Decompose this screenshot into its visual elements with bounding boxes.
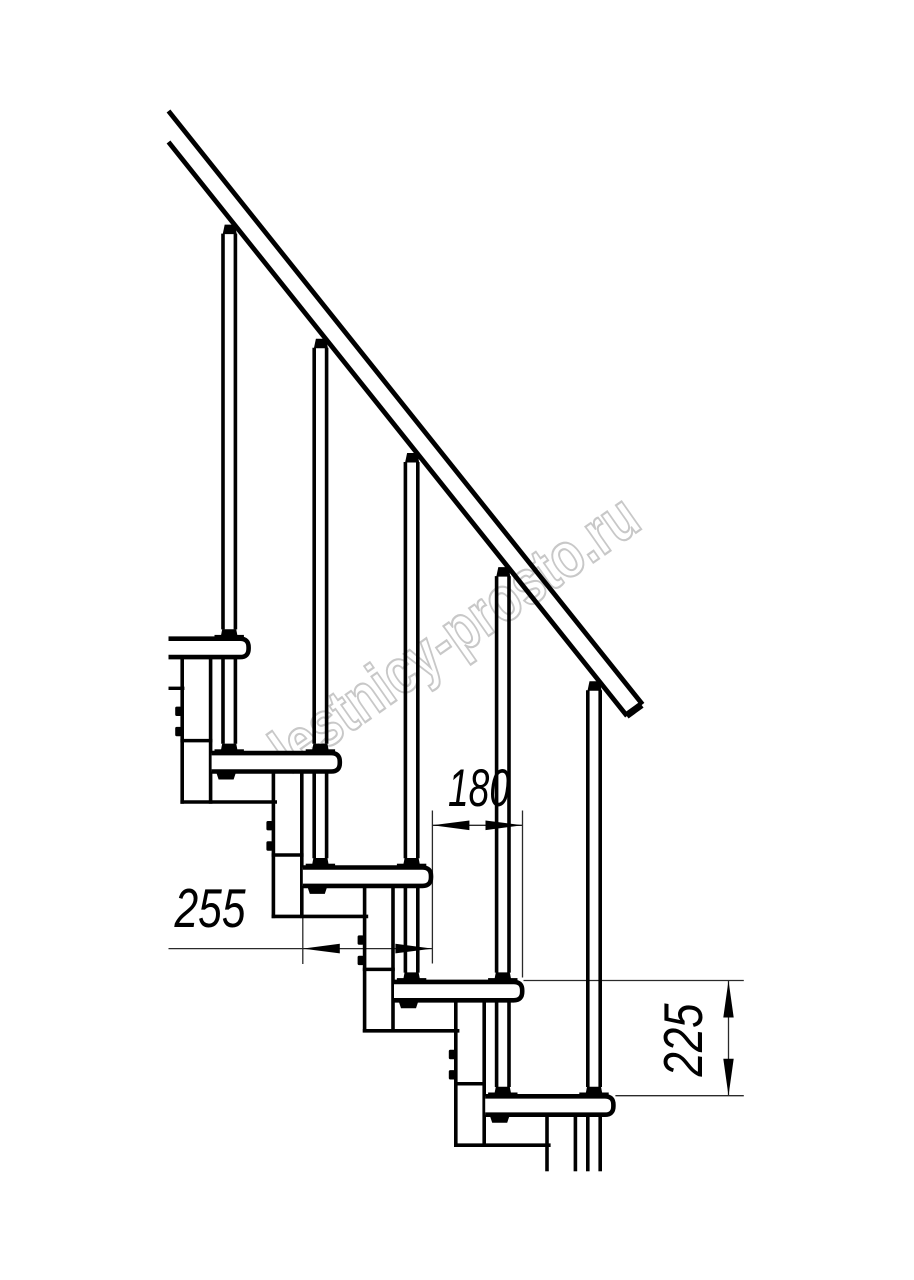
svg-text:255: 255 bbox=[174, 877, 246, 939]
svg-text:180: 180 bbox=[448, 759, 510, 818]
svg-text:225: 225 bbox=[652, 1003, 714, 1077]
